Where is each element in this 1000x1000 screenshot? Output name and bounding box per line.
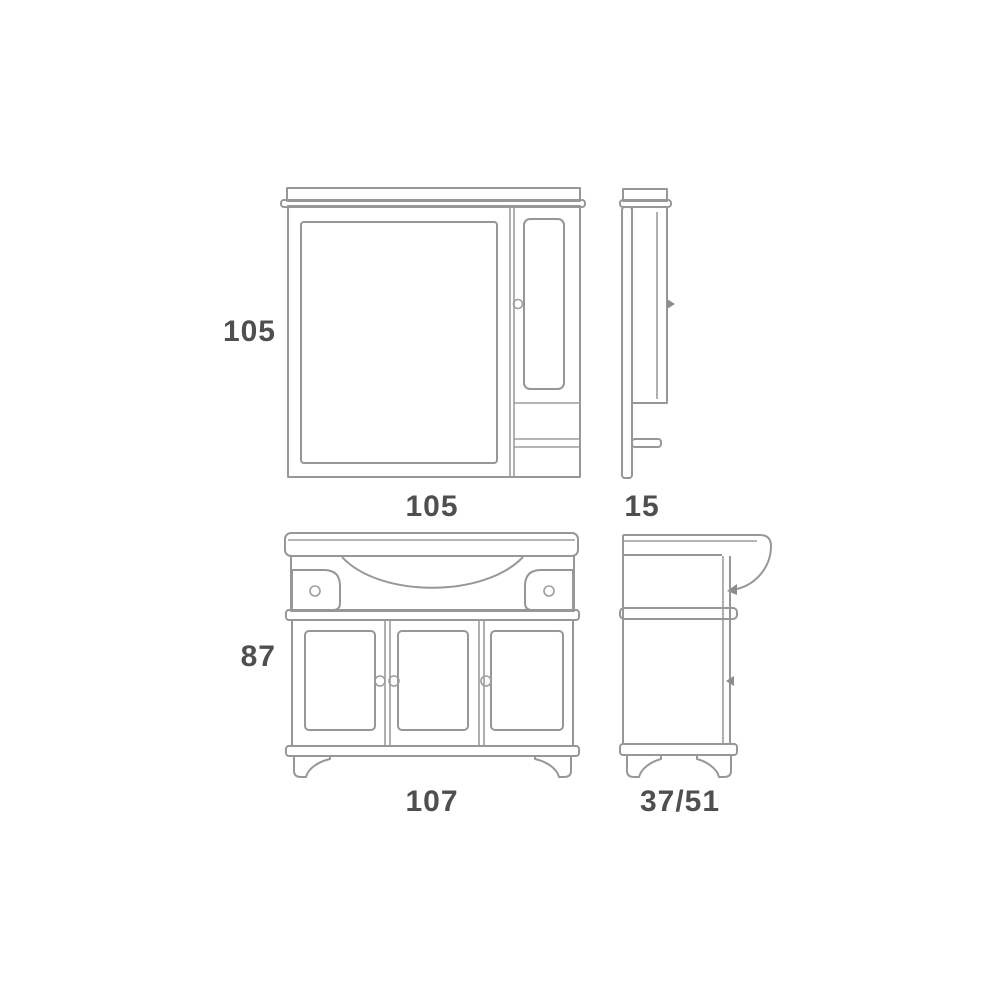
dimension-label-mirror-depth: 15 — [582, 492, 702, 522]
door-knob-icon — [667, 299, 675, 309]
knob-icon — [544, 586, 554, 596]
base-rail — [620, 744, 737, 755]
door-panel-middle — [398, 631, 468, 730]
base-rail — [286, 746, 579, 756]
apron-corner-panel-right — [525, 570, 573, 610]
dimension-label-mirror-width: 105 — [372, 492, 492, 522]
cabinet-body — [288, 206, 580, 477]
dimension-label-mirror-height: 105 — [196, 317, 276, 347]
vanity-front-view — [285, 533, 579, 777]
door-panel-right — [491, 631, 563, 730]
countertop — [285, 533, 578, 556]
door-knob-icon — [375, 676, 385, 686]
apron-corner-panel-left — [292, 570, 340, 610]
bracket-foot-front — [697, 755, 731, 777]
mirror-cabinet-front-view — [281, 188, 585, 477]
basin-lip-arrow-icon — [727, 584, 737, 595]
dimension-label-vanity-depth: 37/51 — [620, 787, 740, 817]
technical-drawing — [0, 0, 1000, 1000]
shelf — [632, 439, 661, 447]
door-knob-icon — [481, 676, 491, 686]
back-panel — [622, 207, 632, 478]
door-panel-left — [305, 631, 375, 730]
countertop-profile — [623, 535, 771, 589]
mirror-cabinet-side-view — [620, 189, 675, 478]
dimension-label-vanity-height: 87 — [196, 642, 276, 672]
mid-rail — [620, 608, 737, 619]
cabinet-body — [292, 620, 573, 746]
mirror — [301, 222, 497, 463]
door-knob-icon — [514, 300, 523, 309]
basin-curve — [342, 557, 523, 588]
cabinet-depth-box — [632, 207, 667, 403]
knob-icon — [310, 586, 320, 596]
technical-drawing-page: 105 105 15 87 107 37/51 — [0, 0, 1000, 1000]
vanity-side-view — [620, 535, 771, 777]
bracket-foot-right — [535, 756, 571, 777]
bracket-foot-left — [294, 756, 330, 777]
apron — [291, 556, 574, 611]
dimension-label-vanity-width: 107 — [372, 787, 492, 817]
bracket-foot-back — [627, 755, 661, 777]
side-door-panel — [524, 219, 564, 389]
